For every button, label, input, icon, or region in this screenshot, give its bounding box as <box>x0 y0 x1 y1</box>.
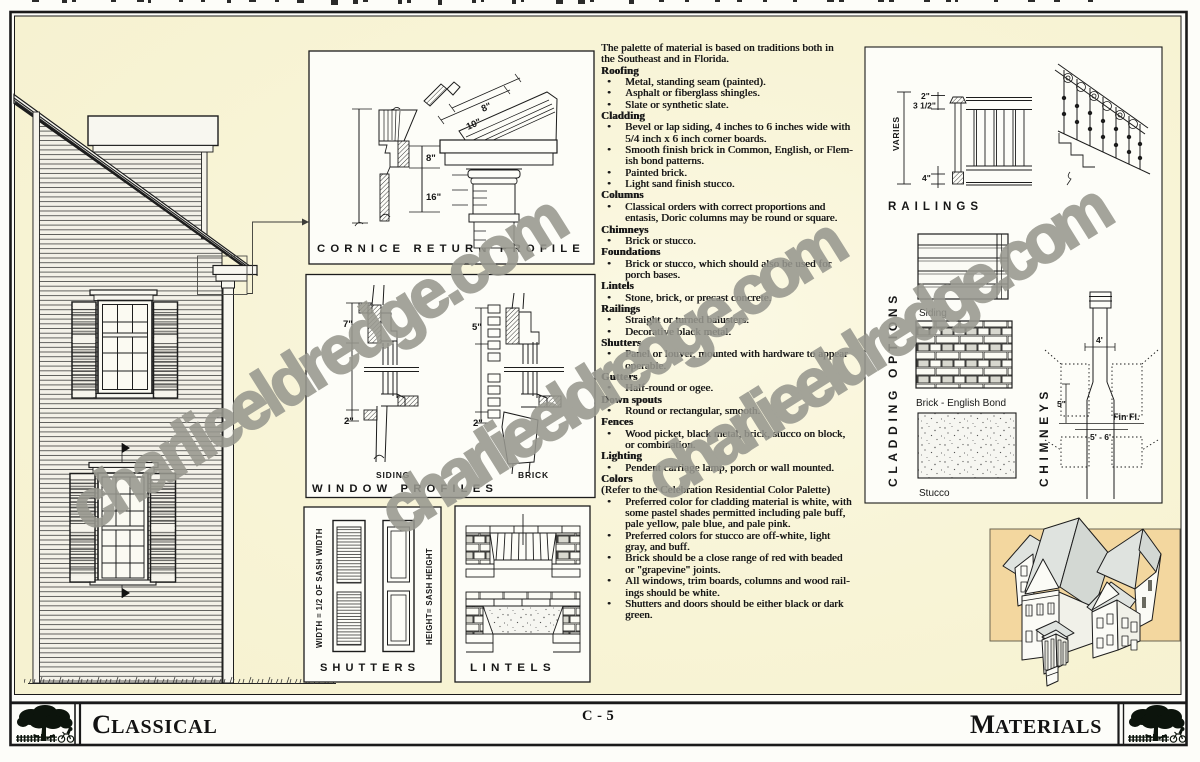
svg-text:16": 16" <box>426 192 441 203</box>
svg-text:4': 4' <box>1096 335 1103 345</box>
svg-text:Brick - English Bond: Brick - English Bond <box>916 398 1006 409</box>
svg-text:4": 4" <box>922 173 931 183</box>
svg-text:WIDTH = 1/2 OF SASH WIDTH: WIDTH = 1/2 OF SASH WIDTH <box>315 528 324 648</box>
svg-text:Fin Fl.: Fin Fl. <box>1113 412 1140 422</box>
svg-text:HEIGHT= SASH HEIGHT: HEIGHT= SASH HEIGHT <box>425 548 434 645</box>
svg-text:RAILINGS: RAILINGS <box>888 201 983 213</box>
svg-text:Stucco: Stucco <box>919 488 950 499</box>
svg-text:MATERIALS: MATERIALS <box>970 709 1102 739</box>
svg-text:C - 5: C - 5 <box>582 708 614 724</box>
svg-text:5' - 6': 5' - 6' <box>1090 432 1111 442</box>
svg-text:LINTELS: LINTELS <box>470 662 556 674</box>
svg-text:3 1/2": 3 1/2" <box>913 101 936 111</box>
svg-text:5": 5" <box>1057 399 1066 409</box>
svg-text:CHIMNEYS: CHIMNEYS <box>1039 387 1051 487</box>
svg-text:8": 8" <box>426 153 436 164</box>
svg-text:2": 2" <box>921 91 930 101</box>
svg-text:CLASSICAL: CLASSICAL <box>92 709 218 739</box>
svg-text:VARIES: VARIES <box>891 116 901 151</box>
svg-text:SHUTTERS: SHUTTERS <box>320 662 420 674</box>
svg-text:2": 2" <box>344 416 354 427</box>
svg-text:5": 5" <box>472 322 482 333</box>
